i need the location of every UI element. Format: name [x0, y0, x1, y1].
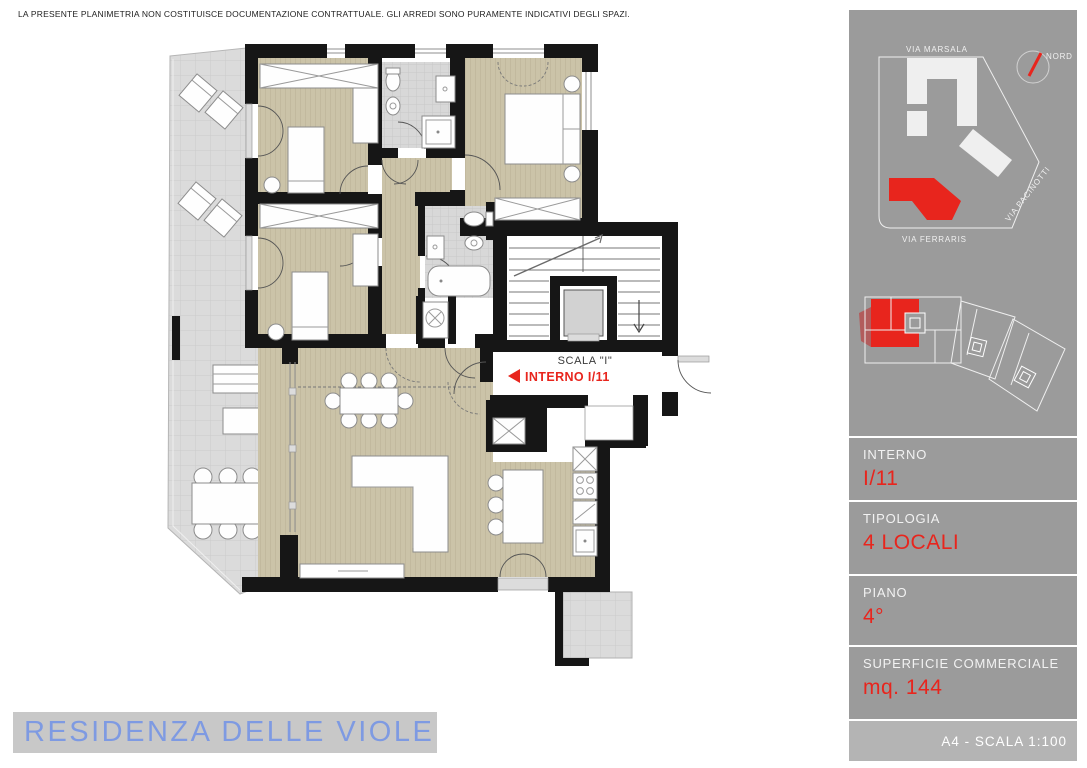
scale-note: A4 - SCALA 1:100 — [849, 719, 1077, 761]
unit-label: INTERNO I/11 — [525, 370, 610, 384]
tipologia-label: TIPOLOGIA — [863, 511, 1077, 526]
interno-label: INTERNO — [863, 447, 1077, 462]
sidebar: NORD VIA MARSALA VIA FERRARIS VIA PACINO… — [849, 10, 1077, 753]
highlighted-building — [889, 178, 961, 220]
panel-piano: PIANO 4° — [849, 574, 1077, 645]
panel-interno: INTERNO I/11 — [849, 436, 1077, 500]
master-bedroom-furniture — [495, 76, 580, 220]
floor-plan: SCALA "I" INTERNO I/11 — [40, 28, 740, 678]
interno-value: I/11 — [863, 467, 1077, 491]
north-compass-icon — [1017, 51, 1049, 83]
disclaimer-text: LA PRESENTE PLANIMETRIA NON COSTITUISCE … — [18, 9, 630, 19]
site-map: NORD VIA MARSALA VIA FERRARIS VIA PACINO… — [849, 10, 1077, 280]
superficie-value: mq. 144 — [863, 676, 1077, 700]
piano-label: PIANO — [863, 585, 1077, 600]
panel-tipologia: TIPOLOGIA 4 LOCALI — [849, 500, 1077, 574]
tipologia-value: 4 LOCALI — [863, 531, 1077, 555]
street-label-ferraris: VIA FERRARIS — [902, 235, 967, 244]
compass-label: NORD — [1046, 52, 1073, 61]
balcony — [563, 592, 632, 658]
street-label-pacinotti: VIA PACINOTTI — [1003, 165, 1051, 223]
neighbor-corridor — [585, 406, 633, 440]
key-plan — [849, 285, 1077, 431]
piano-value: 4° — [863, 605, 1077, 629]
stairwell-label: SCALA "I" — [558, 355, 613, 367]
entry-closet — [493, 418, 525, 444]
street-label-marsala: VIA MARSALA — [906, 45, 968, 54]
superficie-label: SUPERFICIE COMMERCIALE — [863, 656, 1077, 671]
project-title: RESIDENZA DELLE VIOLE — [13, 712, 437, 753]
panel-superficie: SUPERFICIE COMMERCIALE mq. 144 — [849, 645, 1077, 719]
